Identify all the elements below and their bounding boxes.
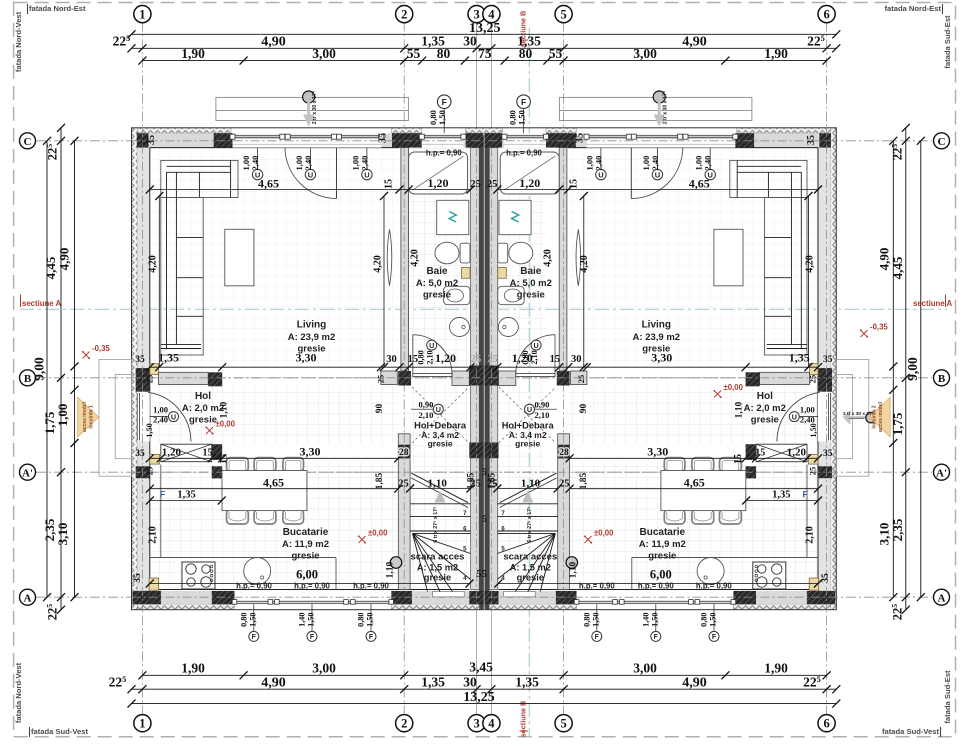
svg-text:A: 2,0 m2: A: 2,0 m2 [744, 403, 786, 414]
svg-text:Hol: Hol [757, 391, 773, 402]
svg-text:1,35: 1,35 [515, 675, 539, 690]
svg-text:F: F [521, 97, 526, 107]
svg-text:1,50: 1,50 [366, 613, 375, 627]
svg-text:gresie: gresie [517, 290, 545, 301]
svg-text:5: 5 [482, 514, 487, 524]
svg-text:4: 4 [488, 717, 495, 731]
svg-text:±0,00: ±0,00 [216, 420, 236, 429]
svg-text:1,85: 1,85 [487, 472, 497, 489]
svg-text:h.p.= 0,90: h.p.= 0,90 [353, 582, 389, 591]
svg-text:6: 6 [823, 8, 829, 22]
svg-text:35: 35 [823, 355, 833, 365]
svg-text:2,10: 2,10 [530, 350, 539, 364]
svg-text:1,35: 1,35 [177, 490, 195, 501]
svg-text:h.p.= 0,90: h.p.= 0,90 [579, 582, 615, 591]
svg-text:1: 1 [139, 8, 145, 22]
svg-text:0,80: 0,80 [582, 613, 591, 627]
svg-text:U: U [598, 171, 603, 180]
svg-text:2,40: 2,40 [703, 156, 713, 171]
svg-text:15: 15 [569, 179, 580, 189]
svg-text:gresie: gresie [424, 573, 451, 583]
svg-text:fatada Nord-Est: fatada Nord-Est [884, 4, 941, 13]
svg-text:30: 30 [571, 354, 582, 365]
svg-text:3,30: 3,30 [300, 445, 321, 459]
svg-text:h.p.= 0,90: h.p.= 0,90 [426, 149, 462, 158]
svg-text:1,50: 1,50 [145, 423, 154, 437]
svg-text:6,00: 6,00 [650, 568, 672, 582]
svg-text:28: 28 [559, 448, 569, 458]
svg-text:1,20: 1,20 [428, 176, 449, 190]
svg-text:5: 5 [560, 8, 566, 22]
svg-text:0,80: 0,80 [357, 613, 366, 627]
svg-text:2 tr x 30 x 17⁵: 2 tr x 30 x 17⁵ [312, 90, 318, 124]
svg-text:F: F [712, 634, 717, 641]
svg-text:25: 25 [807, 375, 817, 384]
svg-text:15: 15 [550, 354, 561, 365]
svg-text:25: 25 [145, 467, 155, 476]
svg-text:25: 25 [576, 375, 586, 384]
svg-text:locuinta 2: locuinta 2 [871, 405, 877, 429]
svg-text:F: F [442, 97, 447, 107]
svg-text:4,20: 4,20 [373, 255, 384, 273]
svg-text:1,50: 1,50 [709, 613, 718, 627]
svg-text:U: U [707, 171, 712, 180]
svg-text:U: U [364, 171, 369, 180]
svg-text:U: U [527, 405, 532, 414]
svg-text:35: 35 [133, 573, 143, 583]
svg-text:1,35: 1,35 [789, 351, 810, 365]
svg-text:1,50: 1,50 [809, 423, 818, 437]
svg-text:55: 55 [407, 46, 421, 61]
svg-text:A: 23,9 m2: A: 23,9 m2 [288, 332, 336, 343]
svg-text:35: 35 [806, 135, 817, 145]
svg-text:fatada Nord-Est: fatada Nord-Est [29, 4, 86, 13]
svg-text:4,20: 4,20 [410, 249, 421, 267]
svg-text:U: U [533, 341, 538, 350]
svg-text:1,35: 1,35 [421, 675, 445, 690]
svg-text:gresie: gresie [298, 344, 326, 355]
svg-text:3: 3 [473, 8, 479, 22]
svg-text:2,10: 2,10 [534, 410, 549, 420]
svg-text:35: 35 [821, 573, 831, 583]
svg-text:35: 35 [574, 133, 585, 143]
svg-text:h.p.= 0,90: h.p.= 0,90 [696, 582, 732, 591]
svg-text:fatada Sud-Est: fatada Sud-Est [943, 15, 952, 69]
svg-text:2,40: 2,40 [153, 415, 168, 425]
svg-text:±0,00: ±0,00 [368, 529, 388, 538]
svg-text:3,00: 3,00 [633, 660, 657, 675]
svg-text:6,00: 6,00 [296, 568, 318, 582]
svg-text:80: 80 [437, 46, 451, 61]
svg-text:2,10: 2,10 [804, 526, 815, 544]
svg-text:gresie: gresie [292, 551, 320, 562]
svg-text:1,75: 1,75 [890, 412, 905, 435]
svg-text:1: 1 [139, 717, 145, 731]
svg-text:2,35: 2,35 [890, 518, 905, 541]
svg-text:Bucatarie: Bucatarie [640, 527, 686, 538]
svg-text:1,40: 1,40 [641, 613, 650, 627]
svg-text:F: F [803, 490, 809, 500]
svg-text:h.p.= 0,90: h.p.= 0,90 [294, 582, 330, 591]
svg-text:1,50: 1,50 [248, 613, 257, 627]
svg-text:25: 25 [487, 354, 498, 365]
svg-text:1,35: 1,35 [158, 351, 179, 365]
svg-text:A': A' [22, 467, 33, 479]
svg-text:locuinta 1: locuinta 1 [89, 405, 95, 429]
svg-text:2,10: 2,10 [426, 350, 435, 364]
svg-text:±0,00: ±0,00 [724, 383, 744, 392]
svg-text:A: 11,9 m2: A: 11,9 m2 [639, 539, 686, 550]
svg-text:30: 30 [463, 34, 477, 49]
svg-text:55: 55 [549, 46, 563, 61]
svg-text:2: 2 [401, 717, 407, 731]
svg-text:9,00: 9,00 [32, 357, 47, 381]
svg-text:C: C [938, 136, 946, 148]
svg-text:2,40: 2,40 [303, 156, 313, 171]
svg-text:1,40: 1,40 [298, 613, 307, 627]
svg-text:1,90: 1,90 [181, 660, 205, 675]
svg-text:U: U [655, 171, 660, 180]
svg-text:15: 15 [203, 448, 213, 459]
svg-text:4,90: 4,90 [682, 676, 707, 691]
svg-text:gresie: gresie [428, 438, 453, 448]
svg-text:25: 25 [559, 479, 570, 490]
svg-text:3: 3 [473, 717, 479, 731]
svg-text:A': A' [936, 467, 947, 479]
svg-text:15: 15 [219, 454, 230, 464]
svg-text:15: 15 [733, 454, 744, 464]
svg-text:A: 11,9 m2: A: 11,9 m2 [282, 539, 329, 550]
svg-text:1,00: 1,00 [55, 404, 70, 427]
svg-text:28: 28 [399, 448, 409, 458]
svg-text:13,25: 13,25 [463, 690, 495, 705]
svg-text:Baie: Baie [426, 266, 448, 277]
svg-text:1,90: 1,90 [764, 660, 788, 675]
svg-text:35: 35 [135, 449, 145, 459]
svg-text:F: F [369, 634, 374, 641]
svg-text:2 tr x 30 x 17⁵: 2 tr x 30 x 17⁵ [663, 90, 669, 124]
svg-text:C: C [24, 136, 32, 148]
svg-text:scara acces: scara acces [411, 552, 465, 563]
svg-text:1,10: 1,10 [428, 478, 448, 490]
svg-text:U: U [171, 413, 176, 422]
svg-text:gresie: gresie [642, 344, 670, 355]
svg-text:1,00: 1,00 [800, 405, 815, 415]
svg-text:2,40: 2,40 [800, 415, 815, 425]
svg-text:F: F [595, 634, 600, 641]
svg-text:2 tr x 30 x 17⁵: 2 tr x 30 x 17⁵ [843, 411, 874, 417]
svg-text:0,90: 0,90 [534, 399, 549, 409]
svg-text:gresie: gresie [751, 415, 779, 426]
svg-text:1,00: 1,00 [153, 405, 168, 415]
svg-text:fatada Nord-Vest: fatada Nord-Vest [14, 662, 23, 723]
svg-text:F: F [310, 634, 315, 641]
svg-text:6 tr x 27⁵ x 17⁵: 6 tr x 27⁵ x 17⁵ [527, 506, 533, 543]
svg-text:F: F [160, 490, 166, 500]
svg-text:4: 4 [488, 8, 495, 22]
svg-text:1,10: 1,10 [386, 561, 396, 578]
svg-text:A: 1,5 m2: A: 1,5 m2 [417, 563, 458, 573]
svg-text:30: 30 [386, 354, 397, 365]
svg-text:Hol: Hol [195, 391, 211, 402]
svg-text:gresie: gresie [189, 415, 217, 426]
svg-text:Living: Living [297, 320, 326, 331]
svg-text:90: 90 [579, 404, 589, 414]
svg-text:gresie: gresie [648, 551, 676, 562]
svg-text:5: 5 [560, 717, 566, 731]
svg-text:1,20: 1,20 [162, 447, 182, 459]
svg-text:scara acces: scara acces [503, 552, 557, 563]
svg-text:U: U [792, 413, 797, 422]
svg-text:25: 25 [145, 375, 155, 384]
svg-text:A: A [24, 592, 32, 604]
svg-text:acces imobil: acces imobil [878, 401, 884, 432]
svg-text:fatada Nord-Vest: fatada Nord-Vest [14, 11, 23, 72]
svg-text:acces imobil: acces imobil [82, 401, 88, 432]
svg-text:55: 55 [476, 569, 487, 580]
svg-text:4,90: 4,90 [57, 248, 72, 271]
svg-text:2,40: 2,40 [593, 156, 603, 171]
svg-text:75: 75 [478, 46, 492, 61]
svg-text:1,50: 1,50 [437, 110, 447, 125]
svg-text:B: B [938, 373, 946, 385]
svg-text:4,65: 4,65 [684, 475, 705, 489]
svg-text:3,30: 3,30 [647, 445, 668, 459]
svg-text:3,00: 3,00 [633, 46, 657, 61]
svg-text:1,20: 1,20 [519, 176, 540, 190]
svg-text:4,90: 4,90 [261, 35, 286, 50]
svg-text:35: 35 [146, 135, 157, 145]
svg-text:A: 2,0 m2: A: 2,0 m2 [182, 403, 224, 414]
svg-text:6: 6 [823, 717, 829, 731]
svg-text:15: 15 [383, 179, 394, 189]
svg-text:1,20: 1,20 [787, 447, 807, 459]
svg-text:4,90: 4,90 [877, 248, 892, 271]
svg-text:25: 25 [807, 467, 817, 476]
svg-text:35: 35 [823, 449, 833, 459]
svg-text:Living: Living [642, 320, 671, 331]
svg-text:4,20: 4,20 [579, 255, 590, 273]
svg-text:4,45: 4,45 [890, 256, 905, 279]
svg-text:3,45: 3,45 [469, 660, 493, 675]
svg-text:4,65: 4,65 [263, 475, 284, 489]
svg-text:1,20: 1,20 [435, 351, 456, 365]
svg-text:35: 35 [135, 355, 145, 365]
svg-text:fatada Sud-Vest: fatada Sud-Vest [882, 727, 939, 736]
svg-text:1,10: 1,10 [521, 478, 541, 490]
svg-text:gresie: gresie [423, 290, 451, 301]
svg-text:25: 25 [470, 179, 481, 190]
svg-text:2: 2 [401, 8, 407, 22]
svg-text:F: F [654, 634, 659, 641]
svg-text:1,90: 1,90 [764, 46, 788, 61]
svg-text:fatada Sud-Est: fatada Sud-Est [943, 670, 952, 724]
svg-text:0,80: 0,80 [239, 613, 248, 627]
svg-text:U: U [436, 405, 441, 414]
svg-text:gresie: gresie [515, 438, 540, 448]
svg-text:A: 5,0 m2: A: 5,0 m2 [416, 278, 458, 289]
svg-text:2,40: 2,40 [650, 156, 660, 171]
svg-text:A: 23,9 m2: A: 23,9 m2 [633, 332, 681, 343]
svg-text:3,00: 3,00 [312, 660, 336, 675]
svg-text:3,00: 3,00 [312, 46, 336, 61]
svg-text:U: U [308, 171, 313, 180]
svg-text:1,50: 1,50 [307, 613, 316, 627]
svg-text:±0,00: ±0,00 [594, 529, 614, 538]
svg-text:5: 5 [482, 467, 487, 477]
svg-text:-0,35: -0,35 [92, 344, 110, 353]
svg-text:25: 25 [398, 479, 409, 490]
svg-text:1,85: 1,85 [375, 472, 385, 489]
svg-text:2,10: 2,10 [418, 410, 433, 420]
svg-text:3,10: 3,10 [55, 523, 70, 546]
svg-text:25: 25 [376, 375, 386, 384]
svg-text:0,80: 0,80 [521, 350, 530, 364]
svg-text:A: 5,0 m2: A: 5,0 m2 [510, 278, 552, 289]
svg-text:30: 30 [463, 675, 477, 690]
svg-text:3,10: 3,10 [877, 523, 892, 546]
svg-text:1,10: 1,10 [568, 561, 578, 578]
svg-text:4,20: 4,20 [804, 255, 815, 273]
svg-text:sectiune A: sectiune A [22, 299, 62, 308]
svg-text:gresie: gresie [517, 573, 544, 583]
svg-text:1,85: 1,85 [579, 472, 589, 489]
svg-text:F: F [252, 634, 257, 641]
svg-text:1,85: 1,85 [467, 472, 477, 489]
svg-text:90: 90 [375, 404, 385, 414]
svg-text:fatada Sud-Vest: fatada Sud-Vest [31, 727, 88, 736]
svg-text:h.p.= 0,90: h.p.= 0,90 [638, 582, 674, 591]
svg-text:2,40: 2,40 [359, 156, 369, 171]
svg-text:25: 25 [487, 179, 498, 190]
svg-text:4,20: 4,20 [542, 249, 553, 267]
svg-text:Baie: Baie [520, 266, 542, 277]
svg-text:h.p.= 0,90: h.p.= 0,90 [506, 149, 542, 158]
svg-text:1,50: 1,50 [650, 613, 659, 627]
svg-text:-0,35: -0,35 [870, 323, 888, 332]
svg-text:1,90: 1,90 [181, 46, 205, 61]
svg-text:sectiune B: sectiune B [519, 701, 528, 737]
svg-text:1,50: 1,50 [591, 613, 600, 627]
svg-text:U: U [255, 171, 260, 180]
svg-text:0,90: 0,90 [418, 399, 433, 409]
svg-text:25: 25 [471, 354, 482, 365]
svg-text:1,35: 1,35 [772, 490, 790, 501]
svg-text:80: 80 [519, 46, 533, 61]
svg-text:4,90: 4,90 [261, 676, 286, 691]
svg-text:Bucatarie: Bucatarie [283, 527, 329, 538]
svg-text:6 tr x 27⁵ x 17⁵: 6 tr x 27⁵ x 17⁵ [433, 506, 439, 543]
svg-text:2,40: 2,40 [250, 156, 260, 171]
svg-text:4,20: 4,20 [148, 255, 159, 273]
svg-text:sectiune A: sectiune A [913, 299, 953, 308]
svg-text:A: 1,5 m2: A: 1,5 m2 [510, 563, 551, 573]
svg-text:0,80: 0,80 [417, 350, 426, 364]
svg-text:1,50: 1,50 [517, 110, 527, 125]
svg-text:0,80: 0,80 [700, 613, 709, 627]
svg-text:4,90: 4,90 [682, 35, 707, 50]
svg-text:2,10: 2,10 [148, 526, 159, 544]
svg-text:35: 35 [378, 133, 389, 143]
svg-text:A: A [938, 592, 946, 604]
svg-text:U: U [429, 341, 434, 350]
svg-text:h.p.= 0,90: h.p.= 0,90 [236, 582, 272, 591]
